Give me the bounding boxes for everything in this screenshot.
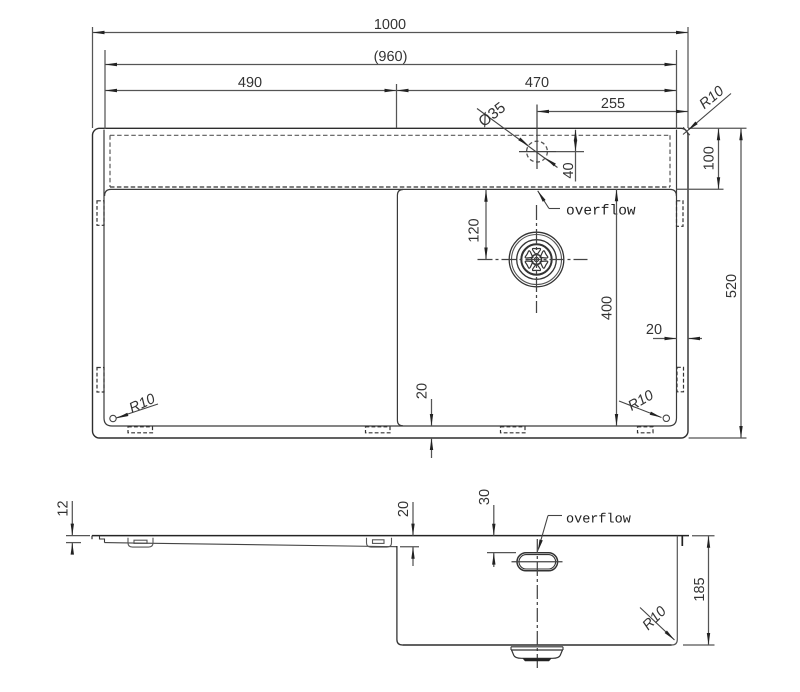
- svg-text:(960): (960): [374, 49, 408, 65]
- svg-text:470: 470: [525, 75, 549, 91]
- svg-text:20: 20: [415, 383, 431, 399]
- svg-text:40: 40: [561, 162, 577, 178]
- svg-text:490: 490: [238, 75, 262, 91]
- svg-text:20: 20: [396, 501, 412, 517]
- svg-text:100: 100: [702, 146, 718, 170]
- svg-text:overflow: overflow: [566, 513, 631, 528]
- svg-text:20: 20: [646, 322, 662, 338]
- svg-text:12: 12: [56, 500, 72, 516]
- svg-text:255: 255: [601, 96, 625, 112]
- svg-text:400: 400: [600, 296, 616, 320]
- svg-text:520: 520: [724, 274, 740, 298]
- svg-text:120: 120: [467, 218, 483, 242]
- svg-text:185: 185: [692, 577, 708, 601]
- svg-text:1000: 1000: [374, 17, 406, 33]
- svg-text:overflow: overflow: [566, 204, 636, 220]
- svg-text:30: 30: [477, 489, 493, 505]
